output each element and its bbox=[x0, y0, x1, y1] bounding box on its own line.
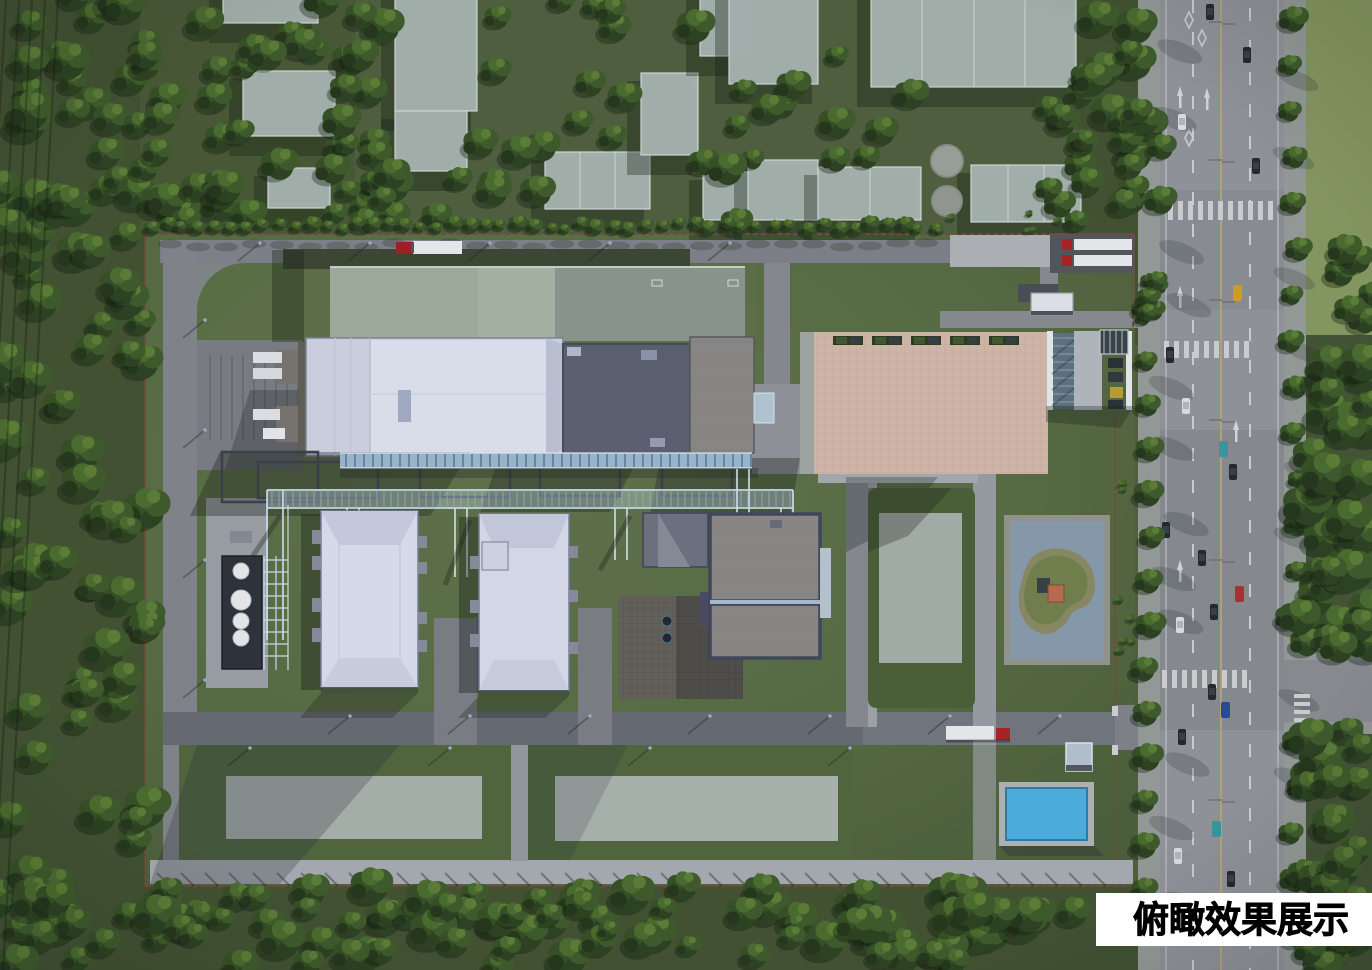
svg-text:俯瞰效果展示: 俯瞰效果展示 bbox=[1133, 899, 1349, 940]
